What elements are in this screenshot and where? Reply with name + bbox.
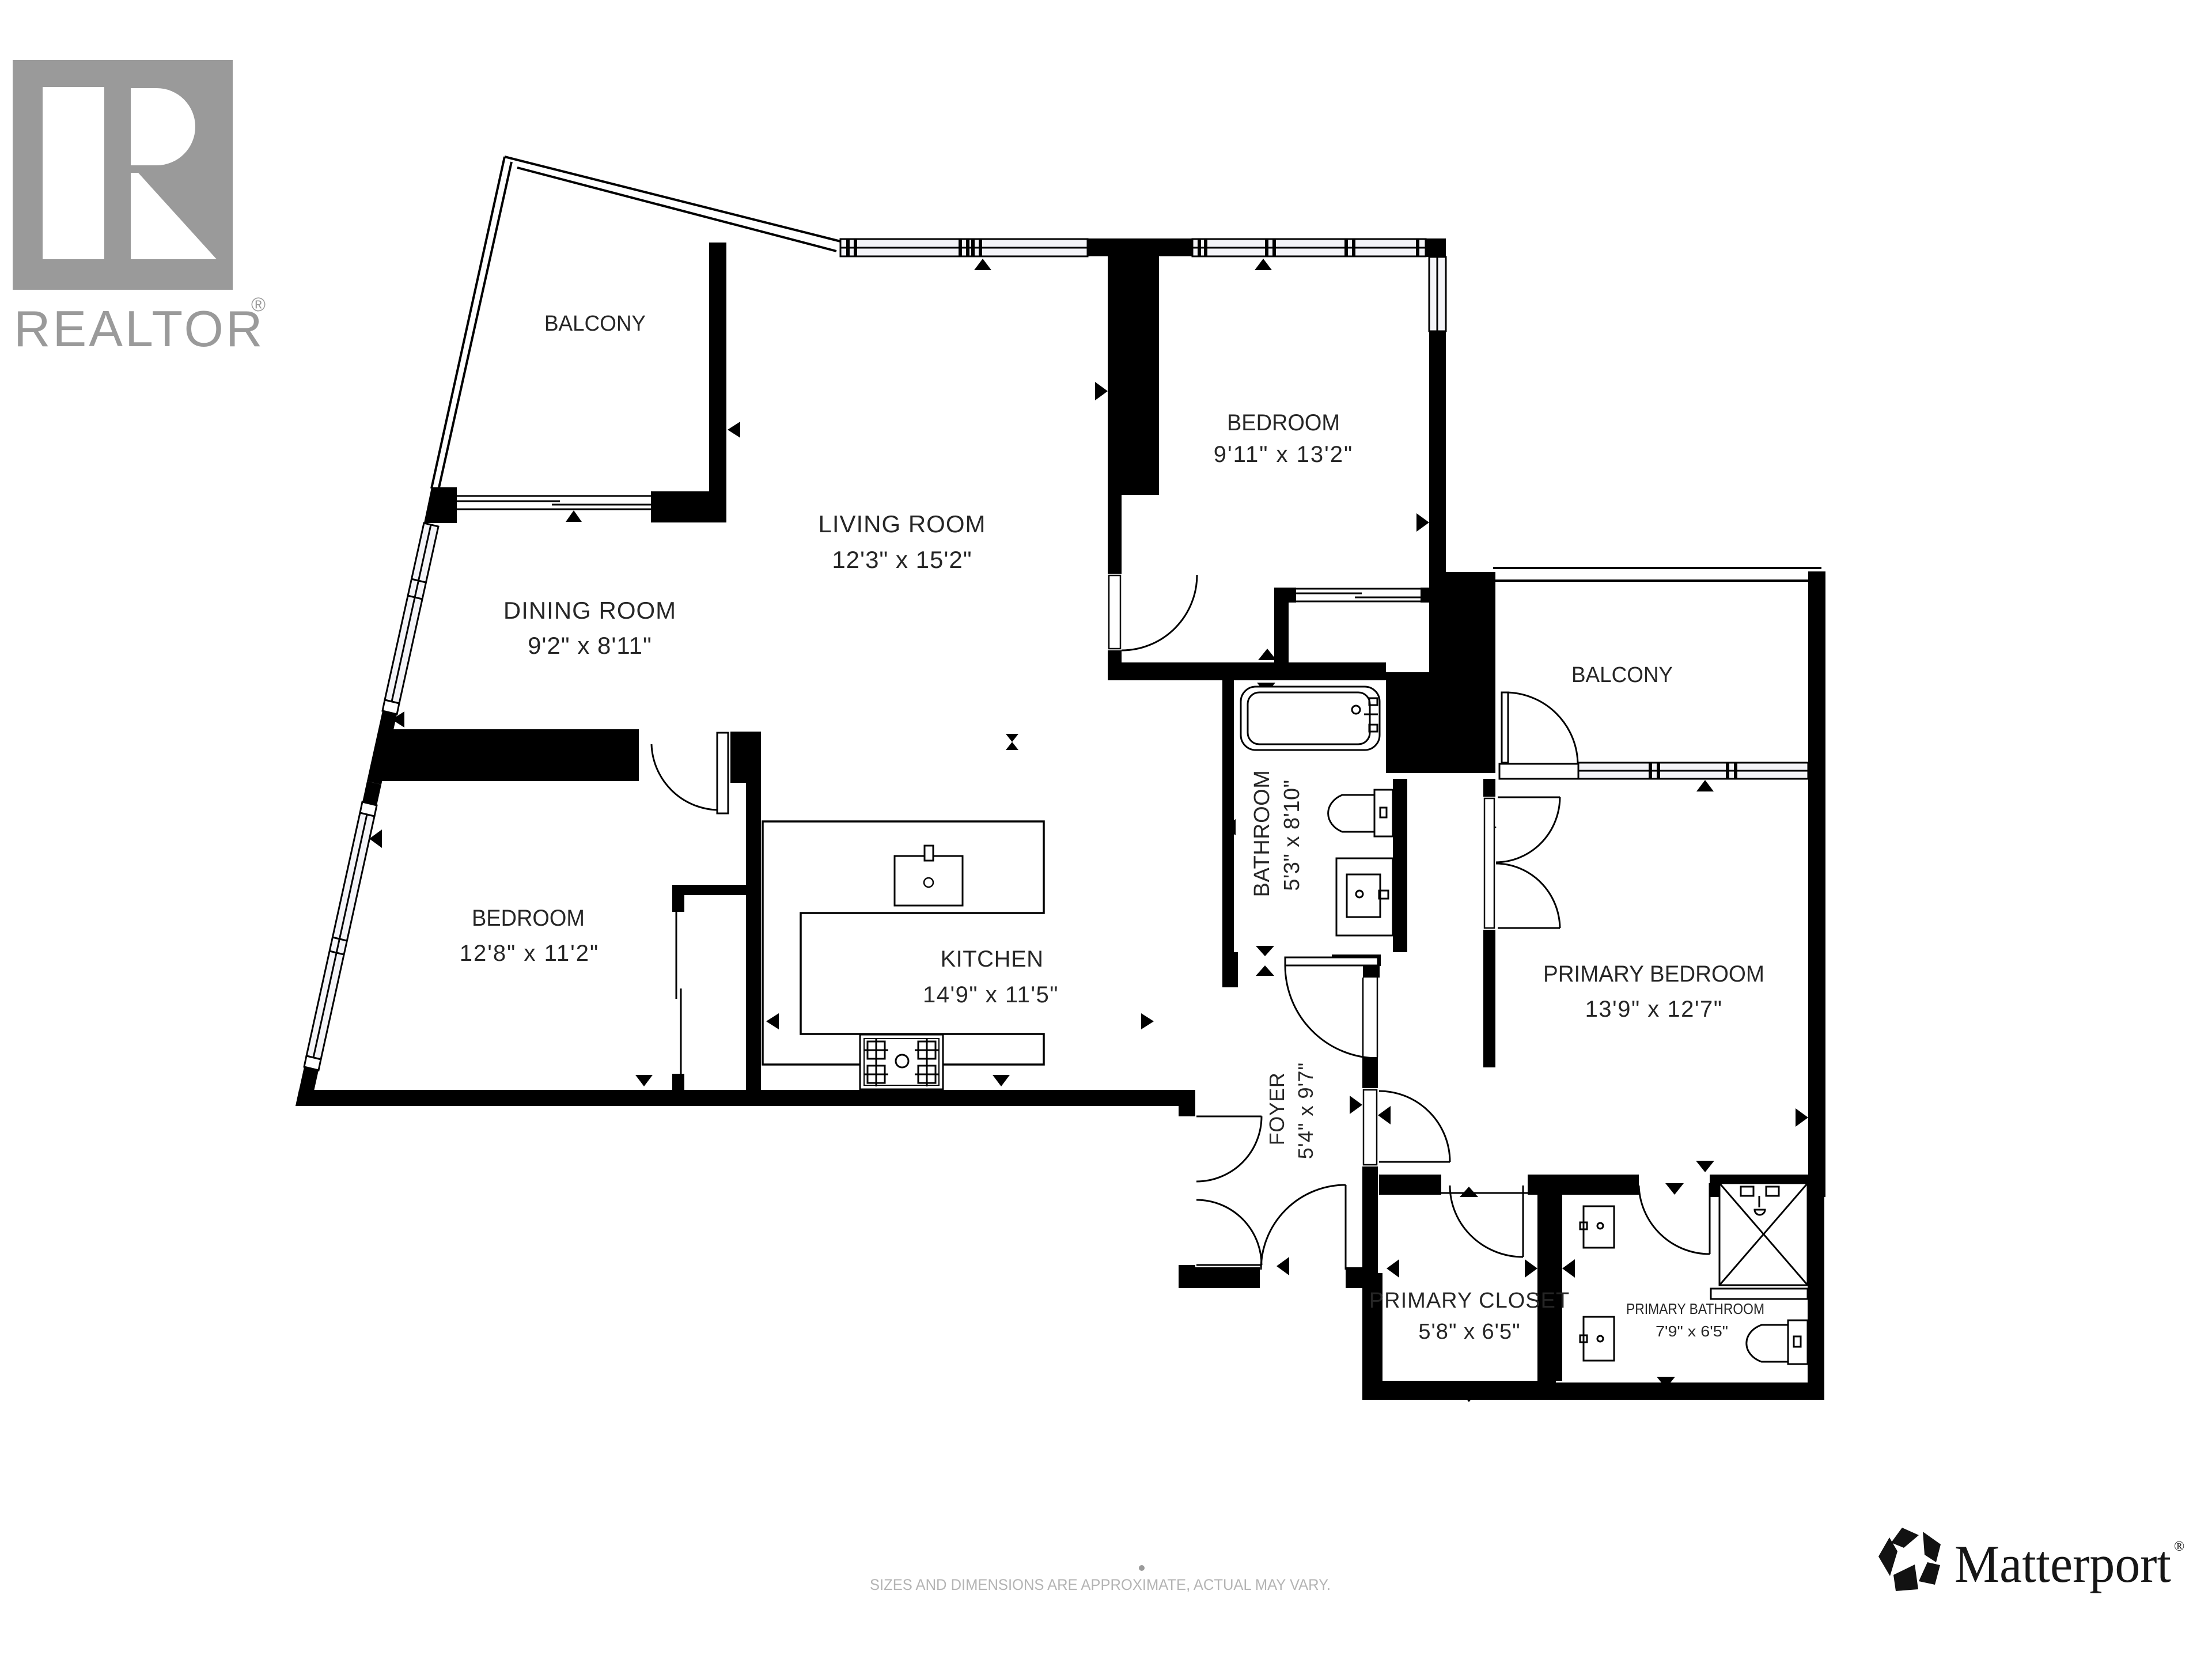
svg-text:®: ® (251, 294, 266, 316)
svg-text:12'8" x 11'2": 12'8" x 11'2" (460, 941, 599, 966)
svg-text:12'3" x 15'2": 12'3" x 15'2" (832, 546, 972, 573)
svg-text:BATHROOM: BATHROOM (1250, 770, 1274, 897)
svg-text:BEDROOM: BEDROOM (472, 906, 585, 931)
svg-text:Matterport: Matterport (1955, 1535, 2171, 1593)
svg-text:PRIMARY BEDROOM: PRIMARY BEDROOM (1543, 961, 1764, 987)
svg-text:7'9" x 6'5": 7'9" x 6'5" (1656, 1323, 1728, 1340)
svg-text:PRIMARY BATHROOM: PRIMARY BATHROOM (1626, 1300, 1764, 1317)
svg-text:®: ® (2174, 1539, 2184, 1554)
svg-text:5'3" x 8'10": 5'3" x 8'10" (1280, 779, 1304, 891)
svg-text:BALCONY: BALCONY (1571, 663, 1673, 687)
svg-text:9'2" x 8'11": 9'2" x 8'11" (528, 632, 652, 659)
svg-text:KITCHEN: KITCHEN (940, 946, 1043, 972)
svg-text:SIZES AND DIMENSIONS ARE APPRO: SIZES AND DIMENSIONS ARE APPROXIMATE, AC… (870, 1576, 1331, 1593)
svg-text:9'11" x 13'2": 9'11" x 13'2" (1214, 442, 1353, 467)
svg-text:FOYER: FOYER (1265, 1073, 1289, 1146)
svg-text:BALCONY: BALCONY (544, 312, 646, 336)
svg-text:DINING ROOM: DINING ROOM (503, 597, 676, 624)
svg-text:BEDROOM: BEDROOM (1227, 410, 1340, 435)
svg-text:13'9" x 12'7": 13'9" x 12'7" (1585, 997, 1723, 1022)
svg-text:5'8" x 6'5": 5'8" x 6'5" (1418, 1320, 1520, 1344)
svg-text:REALTOR: REALTOR (14, 300, 265, 357)
svg-text:14'9" x 11'5": 14'9" x 11'5" (923, 982, 1059, 1007)
svg-text:LIVING ROOM: LIVING ROOM (818, 510, 986, 537)
svg-text:5'4" x 9'7": 5'4" x 9'7" (1294, 1062, 1317, 1159)
svg-text:PRIMARY CLOSET: PRIMARY CLOSET (1369, 1289, 1570, 1313)
